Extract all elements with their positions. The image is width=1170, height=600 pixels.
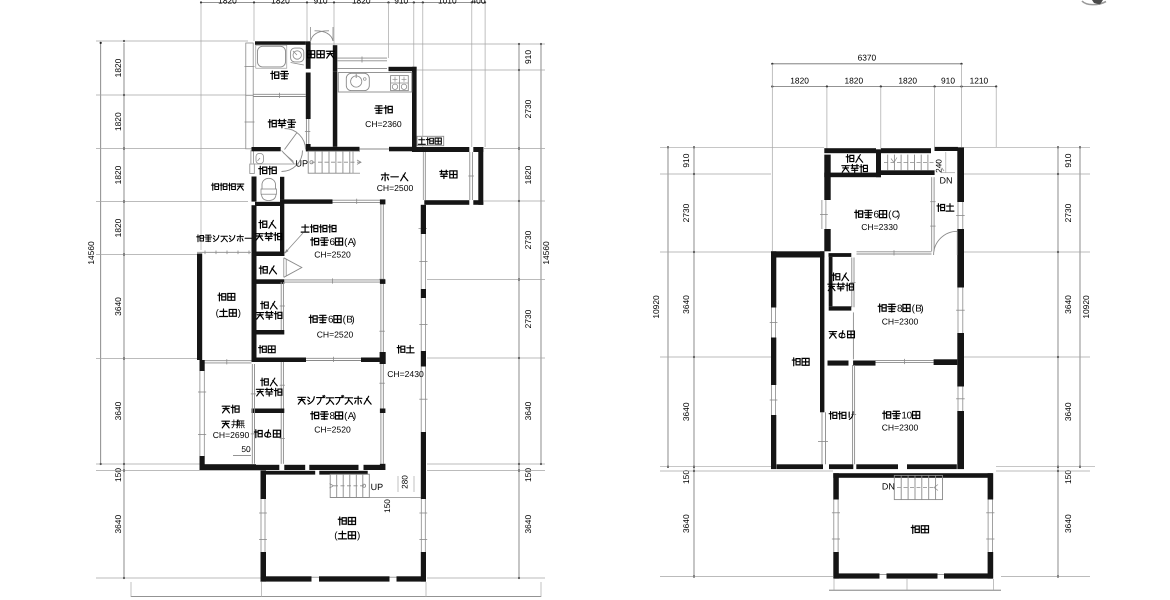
svg-text:150: 150 (113, 468, 123, 482)
svg-text:2730: 2730 (523, 99, 533, 118)
svg-text:1820: 1820 (218, 0, 237, 6)
svg-text:3640: 3640 (113, 297, 123, 316)
svg-text:3640: 3640 (1063, 295, 1073, 314)
svg-text:1010: 1010 (438, 0, 457, 6)
svg-text:DN: DN (882, 482, 895, 492)
svg-text:1820: 1820 (352, 0, 371, 6)
svg-text:CH=2520: CH=2520 (314, 424, 351, 434)
svg-text:1820: 1820 (523, 165, 533, 184)
svg-text:1820: 1820 (113, 58, 123, 77)
svg-text:150: 150 (523, 468, 533, 482)
svg-text:UP: UP (296, 159, 309, 169)
svg-text:2730: 2730 (523, 230, 533, 249)
svg-text:3640: 3640 (1063, 402, 1073, 421)
svg-text:無: 無 (236, 418, 246, 430)
svg-text:CH=2500: CH=2500 (377, 183, 414, 193)
svg-text:3640: 3640 (681, 402, 691, 421)
svg-text:1820: 1820 (271, 0, 290, 6)
svg-text:): ) (238, 308, 241, 319)
svg-text:CH=2300: CH=2300 (882, 316, 919, 326)
svg-text:910: 910 (523, 50, 533, 64)
svg-text:CH=2360: CH=2360 (365, 119, 402, 129)
svg-text:): ) (897, 209, 900, 220)
svg-text:14560: 14560 (541, 241, 551, 265)
svg-text:6: 6 (328, 314, 334, 325)
svg-text:910: 910 (394, 0, 408, 6)
svg-text:1820: 1820 (790, 75, 809, 85)
svg-text:6: 6 (874, 209, 880, 220)
svg-text:DN: DN (940, 175, 953, 185)
svg-text:CH=2430: CH=2430 (387, 369, 424, 379)
svg-text:910: 910 (314, 0, 328, 6)
svg-text:1820: 1820 (844, 75, 863, 85)
svg-text:150: 150 (383, 499, 392, 513)
svg-text:3640: 3640 (681, 514, 691, 533)
svg-text:150: 150 (1063, 470, 1073, 484)
svg-text:): ) (351, 314, 354, 325)
svg-text:0: 0 (907, 410, 913, 421)
svg-text:1820: 1820 (113, 218, 123, 237)
svg-text:910: 910 (941, 75, 955, 85)
svg-text:3640: 3640 (113, 401, 123, 420)
svg-text:1210: 1210 (970, 75, 989, 85)
svg-text:6370: 6370 (858, 53, 877, 63)
svg-text:): ) (920, 303, 923, 314)
svg-text:1820: 1820 (898, 75, 917, 85)
svg-text:8: 8 (897, 303, 903, 314)
svg-text:910: 910 (681, 153, 691, 167)
svg-text:): ) (353, 237, 356, 248)
svg-text:50: 50 (241, 444, 251, 454)
svg-text:3640: 3640 (523, 515, 533, 534)
svg-text:CH=2690: CH=2690 (213, 430, 250, 440)
svg-text:400: 400 (472, 0, 486, 6)
svg-text:): ) (357, 531, 360, 542)
svg-text:6: 6 (330, 237, 336, 248)
svg-text:3640: 3640 (523, 401, 533, 420)
svg-text:CH=2520: CH=2520 (314, 249, 351, 259)
svg-text:3640: 3640 (681, 295, 691, 314)
svg-text:CH=2330: CH=2330 (861, 222, 898, 232)
svg-text:10920: 10920 (1081, 295, 1091, 319)
svg-text:UP: UP (371, 482, 384, 492)
svg-text:CH=2300: CH=2300 (882, 422, 919, 432)
svg-text:3640: 3640 (1063, 514, 1073, 533)
svg-text:2730: 2730 (523, 309, 533, 328)
svg-text:280: 280 (401, 475, 410, 489)
svg-text:1820: 1820 (113, 112, 123, 131)
svg-text:910: 910 (1063, 153, 1073, 167)
svg-text:CH=2520: CH=2520 (317, 330, 354, 340)
svg-text:): ) (353, 411, 356, 422)
svg-text:1820: 1820 (113, 165, 123, 184)
svg-text:8: 8 (330, 411, 336, 422)
svg-text:10920: 10920 (651, 295, 661, 319)
svg-text:2730: 2730 (681, 203, 691, 222)
svg-text:240: 240 (935, 159, 944, 173)
svg-text:14560: 14560 (86, 241, 96, 265)
svg-text:3640: 3640 (113, 515, 123, 534)
svg-text:150: 150 (681, 470, 691, 484)
svg-text:2730: 2730 (1063, 203, 1073, 222)
